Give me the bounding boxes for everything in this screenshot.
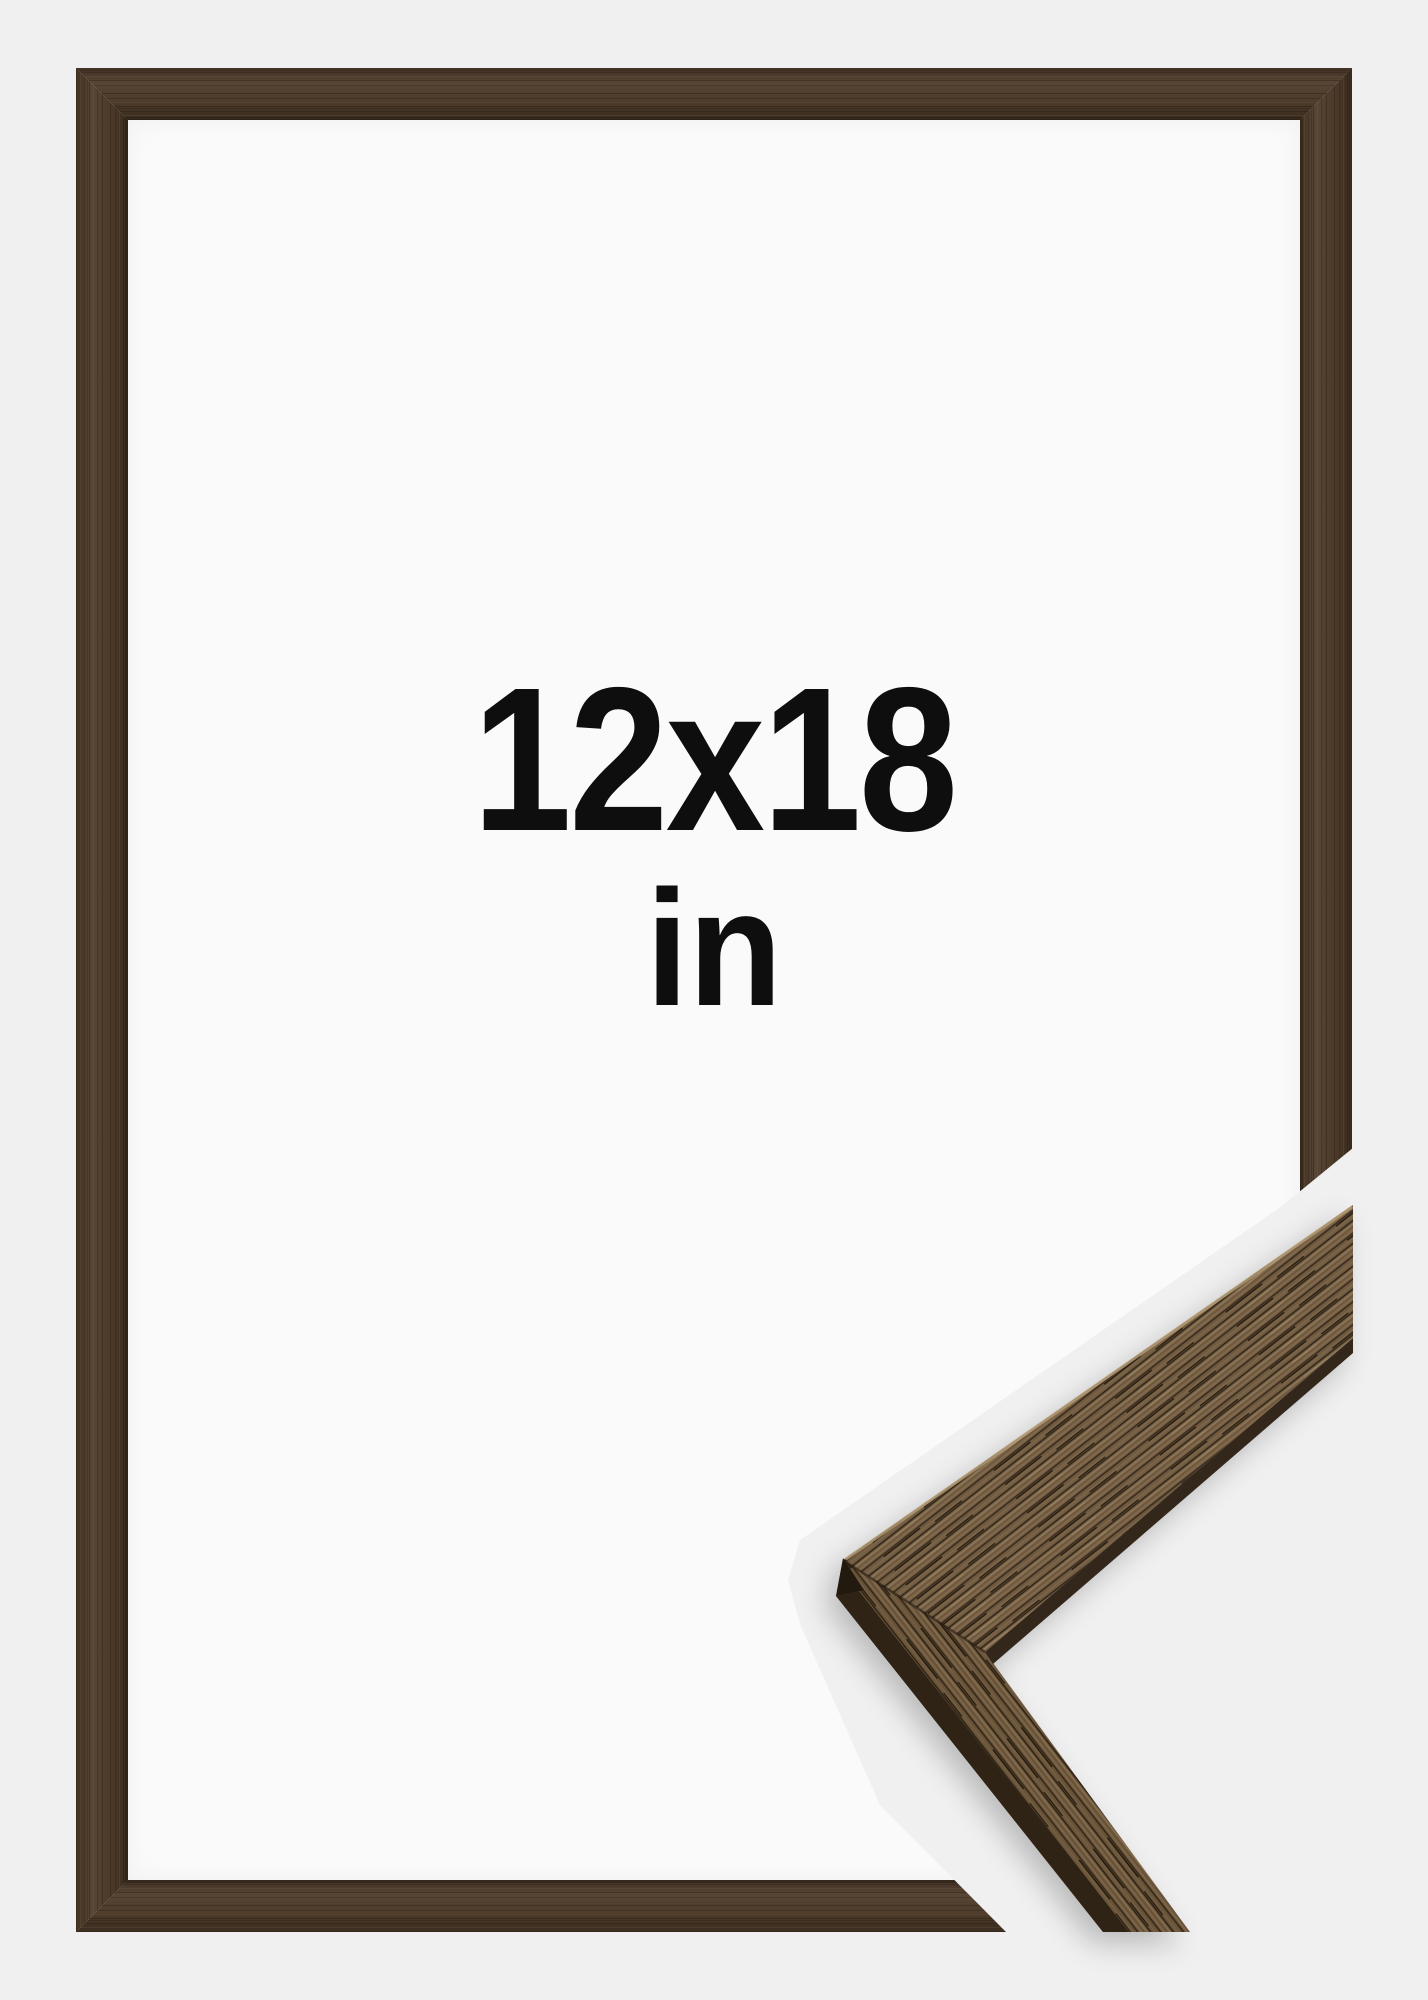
frame-bar-top [76, 68, 1352, 120]
frame-bar-bottom [76, 1880, 1352, 1932]
size-label: 12x18 [93, 640, 1335, 880]
frame-product-preview: 12x18 in [0, 0, 1428, 2000]
unit-label: in [50, 858, 1378, 1038]
